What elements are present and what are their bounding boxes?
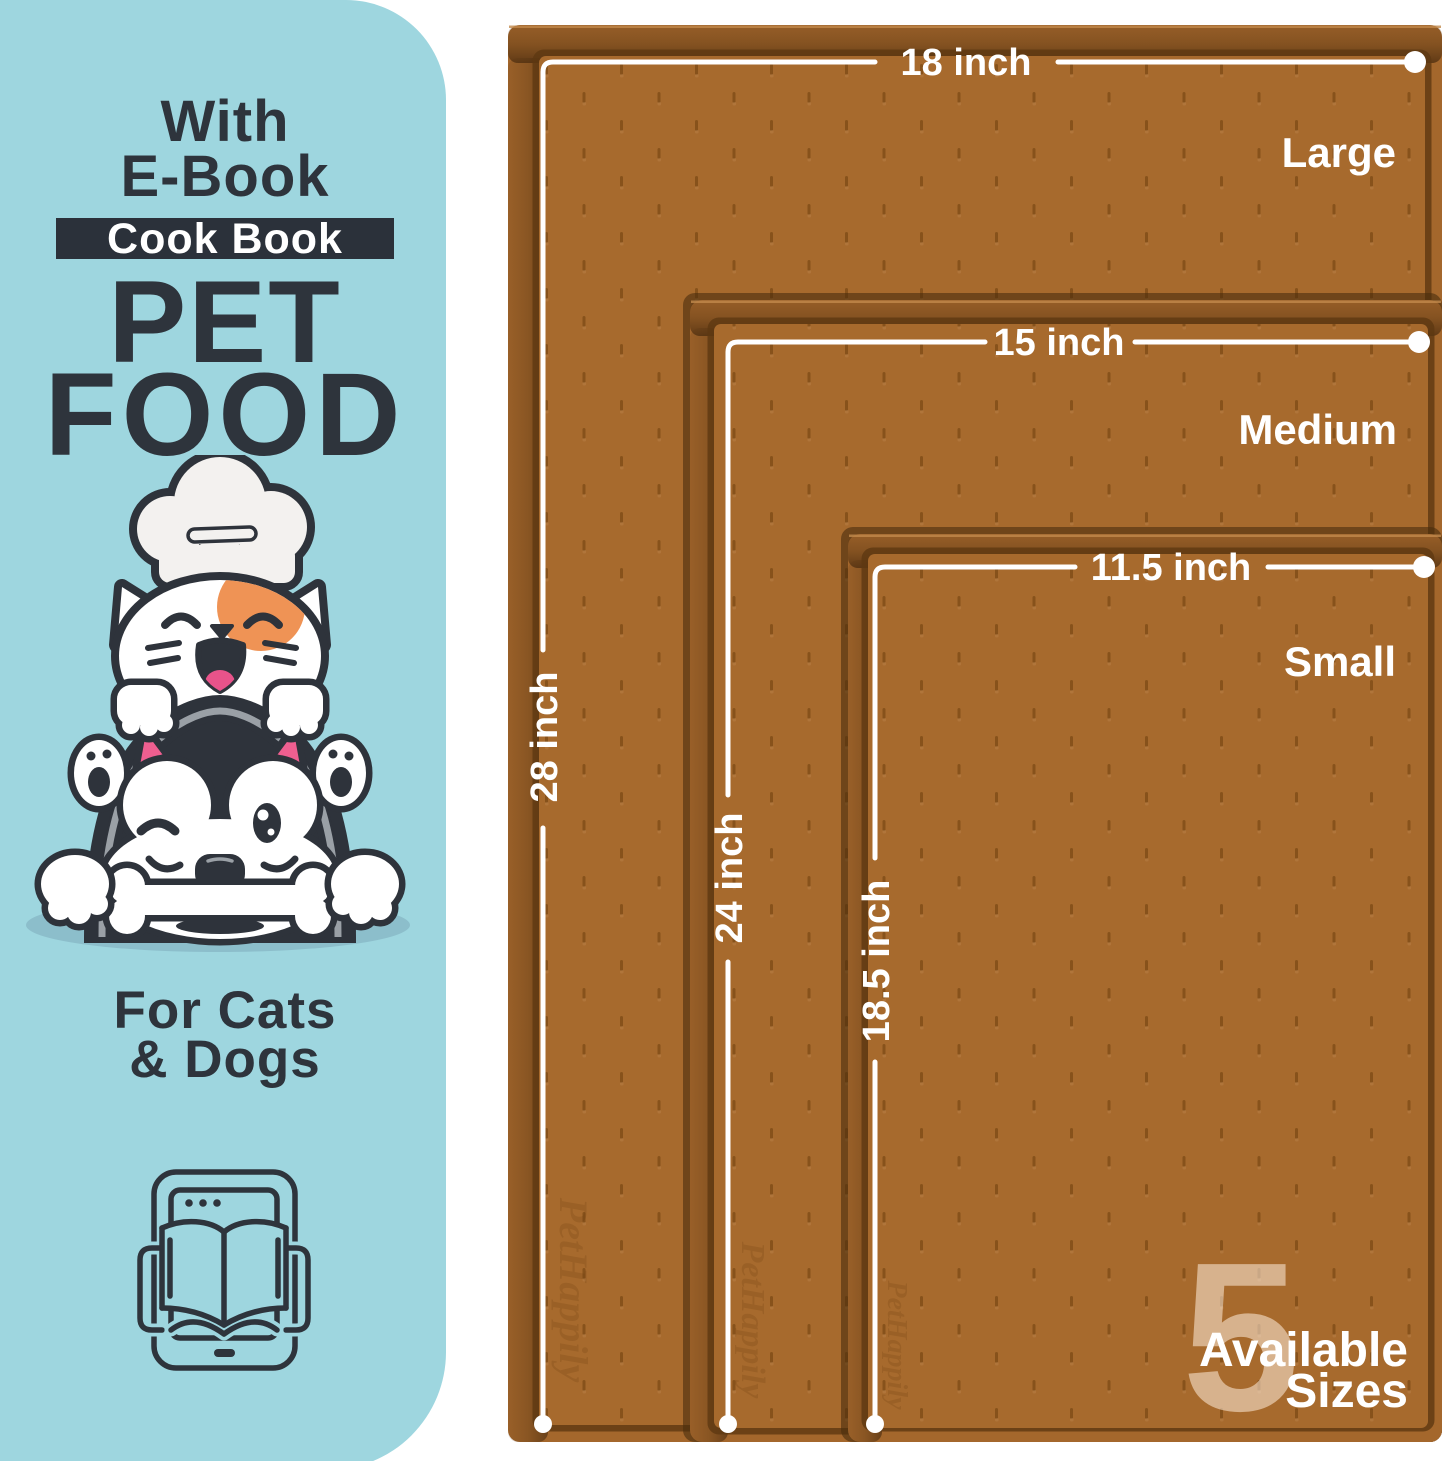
svg-text:PetHappily: PetHappily	[881, 1279, 912, 1410]
svg-text:PetHappily: PetHappily	[551, 1197, 596, 1383]
svg-text:28 inch: 28 inch	[524, 672, 566, 803]
svg-text:24 inch: 24 inch	[709, 813, 751, 944]
svg-text:PetHappily: PetHappily	[734, 1241, 771, 1400]
svg-text:11.5 inch: 11.5 inch	[1091, 547, 1252, 589]
svg-text:15 inch: 15 inch	[994, 322, 1125, 364]
svg-text:Large: Large	[1282, 129, 1396, 176]
svg-text:18.5 inch: 18.5 inch	[856, 880, 898, 1043]
svg-text:Medium: Medium	[1238, 406, 1397, 453]
svg-text:Sizes: Sizes	[1285, 1365, 1408, 1418]
svg-text:Small: Small	[1284, 638, 1396, 685]
svg-text:18 inch: 18 inch	[901, 42, 1032, 84]
